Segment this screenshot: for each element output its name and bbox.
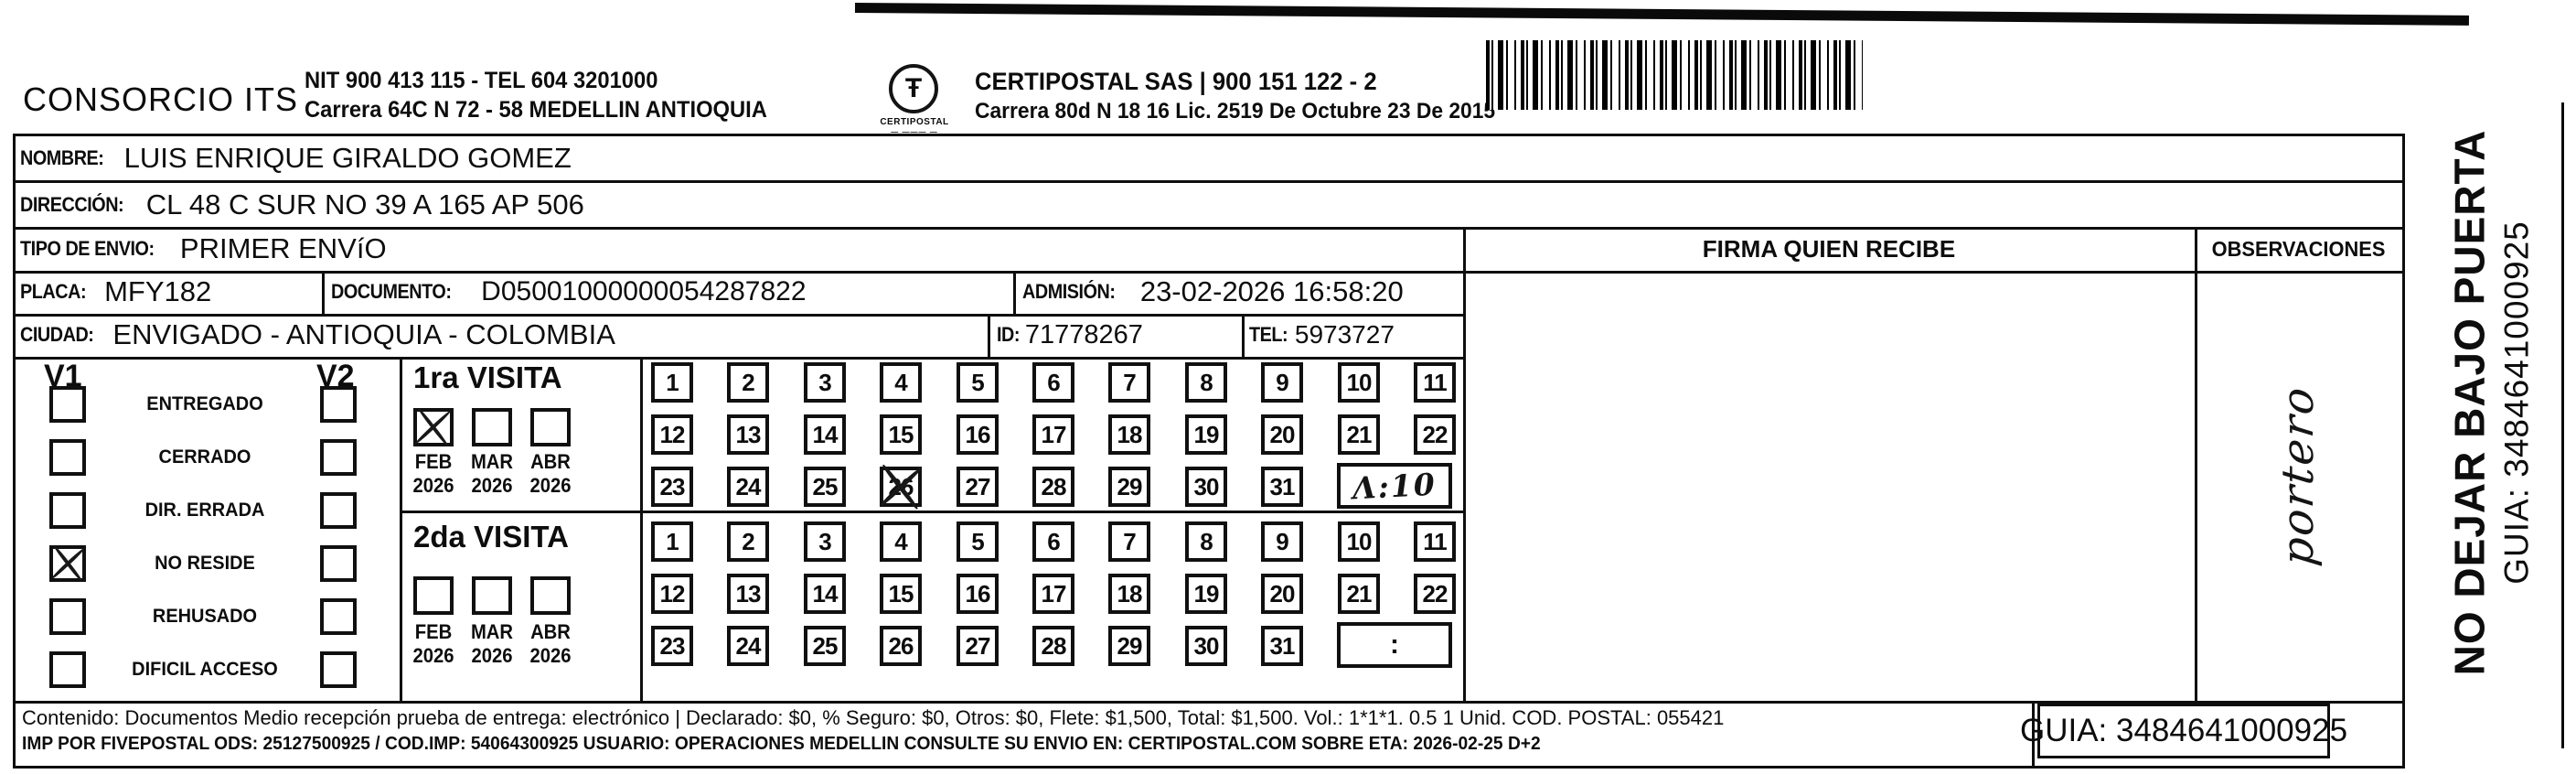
form-line-v-8 bbox=[2032, 701, 2035, 766]
certipostal-address: Carrera 80d N 18 16 Lic. 2519 De Octubre… bbox=[975, 99, 1495, 124]
day-second-29: 29 bbox=[1108, 626, 1150, 666]
day-second-12: 12 bbox=[651, 574, 693, 614]
day-first-7: 7 bbox=[1108, 362, 1150, 403]
tipo-envio-label: TIPO DE ENVIO: bbox=[20, 237, 155, 261]
first-visit-month-checkbox-feb bbox=[413, 408, 454, 446]
day-second-7: 7 bbox=[1108, 521, 1150, 562]
day-second-13: 13 bbox=[727, 574, 769, 614]
day-second-10: 10 bbox=[1338, 521, 1380, 562]
certipostal-logo-icon: Ŧ bbox=[889, 64, 938, 113]
admision-value: 23-02-2026 16:58:20 bbox=[1140, 275, 1404, 308]
year-label: 2026 bbox=[465, 644, 519, 668]
first-visit-title: 1ra VISITA bbox=[413, 360, 562, 395]
logo-wordmark: CERTIPOSTAL bbox=[869, 117, 960, 127]
day-second-18: 18 bbox=[1108, 574, 1150, 614]
v1-checkbox-no-reside bbox=[49, 545, 86, 582]
tipo-envio-value: PRIMER ENVíO bbox=[180, 232, 387, 265]
second-visit-time-box: : bbox=[1337, 622, 1452, 668]
day-first-18: 18 bbox=[1108, 414, 1150, 455]
day-second-21: 21 bbox=[1338, 574, 1380, 614]
v2-checkbox-dir-errada bbox=[320, 492, 357, 529]
year-label: 2026 bbox=[524, 644, 578, 668]
day-first-16: 16 bbox=[957, 414, 999, 455]
v2-checkbox-dificil-acceso bbox=[320, 651, 357, 688]
company-address: Carrera 64C N 72 - 58 MEDELLIN ANTIOQUIA bbox=[305, 97, 767, 124]
day-first-19: 19 bbox=[1185, 414, 1227, 455]
day-first-2: 2 bbox=[727, 362, 769, 403]
form-line-v-3 bbox=[1242, 314, 1245, 357]
footer-imp-line: IMP POR FIVEPOSTAL ODS: 25127500925 / CO… bbox=[22, 734, 1541, 755]
form-line-h-4 bbox=[14, 357, 1463, 360]
handwritten-observation: portero bbox=[2272, 383, 2324, 568]
day-first-10: 10 bbox=[1338, 362, 1380, 403]
year-label: 2026 bbox=[465, 474, 519, 498]
no-dejar-bajo-puerta-text: NO DEJAR BAJO PUERTA bbox=[2444, 130, 2494, 676]
observaciones-area: portero bbox=[2197, 293, 2400, 659]
handwritten-x-mark bbox=[412, 405, 456, 448]
scan-artifact-top-line bbox=[855, 3, 2469, 26]
day-first-4: 4 bbox=[880, 362, 922, 403]
day-second-23: 23 bbox=[651, 626, 693, 666]
day-first-23: 23 bbox=[651, 467, 693, 507]
day-second-9: 9 bbox=[1261, 521, 1303, 562]
guia-number-box: GUIA: 3484641000925 bbox=[2037, 704, 2330, 758]
day-second-1: 1 bbox=[651, 521, 693, 562]
handwritten-time: Λ:10 bbox=[1352, 466, 1438, 506]
placa-label: PLACA: bbox=[20, 280, 86, 304]
year-label: 2026 bbox=[407, 474, 461, 498]
form-line-v-4 bbox=[400, 357, 402, 701]
handwritten-day-cross bbox=[877, 464, 924, 509]
form-line-v-6 bbox=[1463, 227, 1466, 701]
form-line-h-1 bbox=[14, 227, 2402, 230]
side-note: NO DEJAR BAJO PUERTA GUIA: 3484641000925 bbox=[2403, 55, 2576, 750]
day-second-31: 31 bbox=[1261, 626, 1303, 666]
ciudad-label: CIUDAD: bbox=[20, 323, 93, 347]
form-line-h-6 bbox=[14, 701, 2402, 704]
status-label-rehusado: REHUSADO bbox=[97, 598, 313, 635]
direccion-label: DIRECCIÓN: bbox=[20, 193, 123, 217]
second-visit-title: 2da VISITA bbox=[413, 520, 569, 554]
day-first-11: 11 bbox=[1414, 362, 1456, 403]
day-first-8: 8 bbox=[1185, 362, 1227, 403]
day-first-22: 22 bbox=[1414, 414, 1456, 455]
side-guia-text: GUIA: 3484641000925 bbox=[2497, 130, 2536, 676]
day-second-11: 11 bbox=[1414, 521, 1456, 562]
day-first-30: 30 bbox=[1185, 467, 1227, 507]
documento-value: D05001000000054287822 bbox=[481, 276, 806, 307]
day-first-17: 17 bbox=[1032, 414, 1074, 455]
day-second-2: 2 bbox=[727, 521, 769, 562]
day-first-3: 3 bbox=[804, 362, 846, 403]
first-visit-month-checkbox-mar bbox=[472, 408, 512, 446]
admision-label: ADMISIÓN: bbox=[1022, 280, 1116, 304]
day-first-24: 24 bbox=[727, 467, 769, 507]
day-second-4: 4 bbox=[880, 521, 922, 562]
day-first-26: 26 bbox=[880, 467, 922, 507]
day-first-1: 1 bbox=[651, 362, 693, 403]
form-line-v-5 bbox=[640, 357, 643, 701]
documento-label: DOCUMENTO: bbox=[331, 280, 452, 304]
day-second-25: 25 bbox=[804, 626, 846, 666]
scanned-delivery-form: CONSORCIO ITS NIT 900 413 115 - TEL 604 … bbox=[0, 0, 2576, 774]
v1-checkbox-entregado bbox=[49, 386, 86, 423]
month-label: ABR bbox=[524, 620, 578, 644]
day-second-27: 27 bbox=[957, 626, 999, 666]
nombre-value: LUIS ENRIQUE GIRALDO GOMEZ bbox=[124, 142, 572, 175]
day-second-20: 20 bbox=[1261, 574, 1303, 614]
v2-checkbox-entregado bbox=[320, 386, 357, 423]
month-label: ABR bbox=[524, 450, 578, 474]
side-note-rotated: NO DEJAR BAJO PUERTA GUIA: 3484641000925 bbox=[2444, 130, 2536, 676]
day-second-19: 19 bbox=[1185, 574, 1227, 614]
time-colon: : bbox=[1390, 629, 1399, 661]
month-label: MAR bbox=[465, 620, 519, 644]
status-label-cerrado: CERRADO bbox=[97, 439, 313, 476]
day-first-15: 15 bbox=[880, 414, 922, 455]
tipo-envio-row: TIPO DE ENVIO: PRIMER ENVíO bbox=[20, 228, 387, 270]
day-first-29: 29 bbox=[1108, 467, 1150, 507]
day-first-9: 9 bbox=[1261, 362, 1303, 403]
v1-checkbox-dir-errada bbox=[49, 492, 86, 529]
day-first-5: 5 bbox=[957, 362, 999, 403]
form-line-h-2 bbox=[14, 271, 2402, 274]
direccion-value: CL 48 C SUR NO 39 A 165 AP 506 bbox=[146, 188, 584, 221]
second-visit-month-checkbox-mar bbox=[472, 576, 512, 615]
day-second-14: 14 bbox=[804, 574, 846, 614]
day-first-12: 12 bbox=[651, 414, 693, 455]
v2-checkbox-rehusado bbox=[320, 598, 357, 635]
day-second-24: 24 bbox=[727, 626, 769, 666]
v1-checkbox-cerrado bbox=[49, 439, 86, 476]
day-second-30: 30 bbox=[1185, 626, 1227, 666]
day-second-3: 3 bbox=[804, 521, 846, 562]
second-visit-month-checkbox-abr bbox=[530, 576, 571, 615]
first-visit-month-checkbox-abr bbox=[530, 408, 571, 446]
day-first-13: 13 bbox=[727, 414, 769, 455]
status-label-entregado: ENTREGADO bbox=[97, 386, 313, 423]
v2-checkbox-no-reside bbox=[320, 545, 357, 582]
tel-label: TEL: bbox=[1249, 323, 1288, 347]
admision-cell: ADMISIÓN: 23-02-2026 16:58:20 bbox=[1022, 272, 1404, 312]
form-line-h-3 bbox=[14, 314, 1463, 317]
day-first-31: 31 bbox=[1261, 467, 1303, 507]
form-line-h-5 bbox=[400, 511, 1463, 513]
ciudad-value: ENVIGADO - ANTIOQUIA - COLOMBIA bbox=[112, 318, 615, 351]
day-second-6: 6 bbox=[1032, 521, 1074, 562]
placa-cell: PLACA: MFY182 bbox=[20, 272, 211, 312]
form-line-v-1 bbox=[1013, 271, 1016, 314]
day-second-16: 16 bbox=[957, 574, 999, 614]
month-label: FEB bbox=[407, 450, 461, 474]
status-label-no-reside: NO RESIDE bbox=[97, 545, 313, 582]
v1-checkbox-rehusado bbox=[49, 598, 86, 635]
day-first-20: 20 bbox=[1261, 414, 1303, 455]
company-name: CONSORCIO ITS bbox=[23, 81, 298, 119]
day-second-22: 22 bbox=[1414, 574, 1456, 614]
logo-glyph: Ŧ bbox=[905, 73, 922, 104]
nombre-row: NOMBRE: LUIS ENRIQUE GIRALDO GOMEZ bbox=[20, 137, 572, 179]
year-label: 2026 bbox=[524, 474, 578, 498]
month-label: MAR bbox=[465, 450, 519, 474]
company-nit-tel: NIT 900 413 115 - TEL 604 3201000 bbox=[305, 68, 657, 94]
day-first-14: 14 bbox=[804, 414, 846, 455]
direccion-row: DIRECCIÓN: CL 48 C SUR NO 39 A 165 AP 50… bbox=[20, 184, 584, 226]
v2-checkbox-cerrado bbox=[320, 439, 357, 476]
first-visit-time-box: Λ:10 bbox=[1337, 463, 1452, 509]
footer-content-line: Contenido: Documentos Medio recepción pr… bbox=[22, 706, 1724, 730]
status-label-dificil-acceso: DIFICIL ACCESO bbox=[97, 651, 313, 688]
form-line-h-0 bbox=[14, 180, 2402, 183]
day-second-15: 15 bbox=[880, 574, 922, 614]
form-line-v-2 bbox=[988, 314, 990, 357]
ciudad-cell: CIUDAD: ENVIGADO - ANTIOQUIA - COLOMBIA bbox=[20, 315, 615, 355]
day-second-8: 8 bbox=[1185, 521, 1227, 562]
tel-value: 5973727 bbox=[1295, 320, 1395, 349]
observaciones-header: OBSERVACIONES bbox=[2203, 229, 2395, 269]
handwritten-x-mark bbox=[48, 543, 89, 585]
id-value: 71778267 bbox=[1025, 320, 1143, 350]
tracking-barcode-icon bbox=[1486, 40, 1863, 110]
day-first-21: 21 bbox=[1338, 414, 1380, 455]
day-second-5: 5 bbox=[957, 521, 999, 562]
day-first-6: 6 bbox=[1032, 362, 1074, 403]
day-second-26: 26 bbox=[880, 626, 922, 666]
month-label: FEB bbox=[407, 620, 461, 644]
day-second-28: 28 bbox=[1032, 626, 1074, 666]
firma-header: FIRMA QUIEN RECIBE bbox=[1466, 229, 2192, 269]
v1-checkbox-dificil-acceso bbox=[49, 651, 86, 688]
documento-cell: DOCUMENTO: D05001000000054287822 bbox=[331, 272, 807, 312]
status-label-dir-errada: DIR. ERRADA bbox=[97, 492, 313, 529]
nombre-label: NOMBRE: bbox=[20, 146, 103, 170]
second-visit-month-checkbox-feb bbox=[413, 576, 454, 615]
placa-value: MFY182 bbox=[104, 275, 211, 308]
day-second-17: 17 bbox=[1032, 574, 1074, 614]
id-cell: ID: 71778267 bbox=[997, 315, 1143, 355]
id-label: ID: bbox=[997, 323, 1020, 347]
form-line-v-7 bbox=[2195, 227, 2197, 701]
day-first-27: 27 bbox=[957, 467, 999, 507]
year-label: 2026 bbox=[407, 644, 461, 668]
certipostal-name: CERTIPOSTAL SAS | 900 151 122 - 2 bbox=[975, 68, 1377, 96]
day-first-25: 25 bbox=[804, 467, 846, 507]
form-line-v-0 bbox=[322, 271, 325, 314]
day-first-28: 28 bbox=[1032, 467, 1074, 507]
tel-cell: TEL: 5973727 bbox=[1249, 315, 1395, 355]
